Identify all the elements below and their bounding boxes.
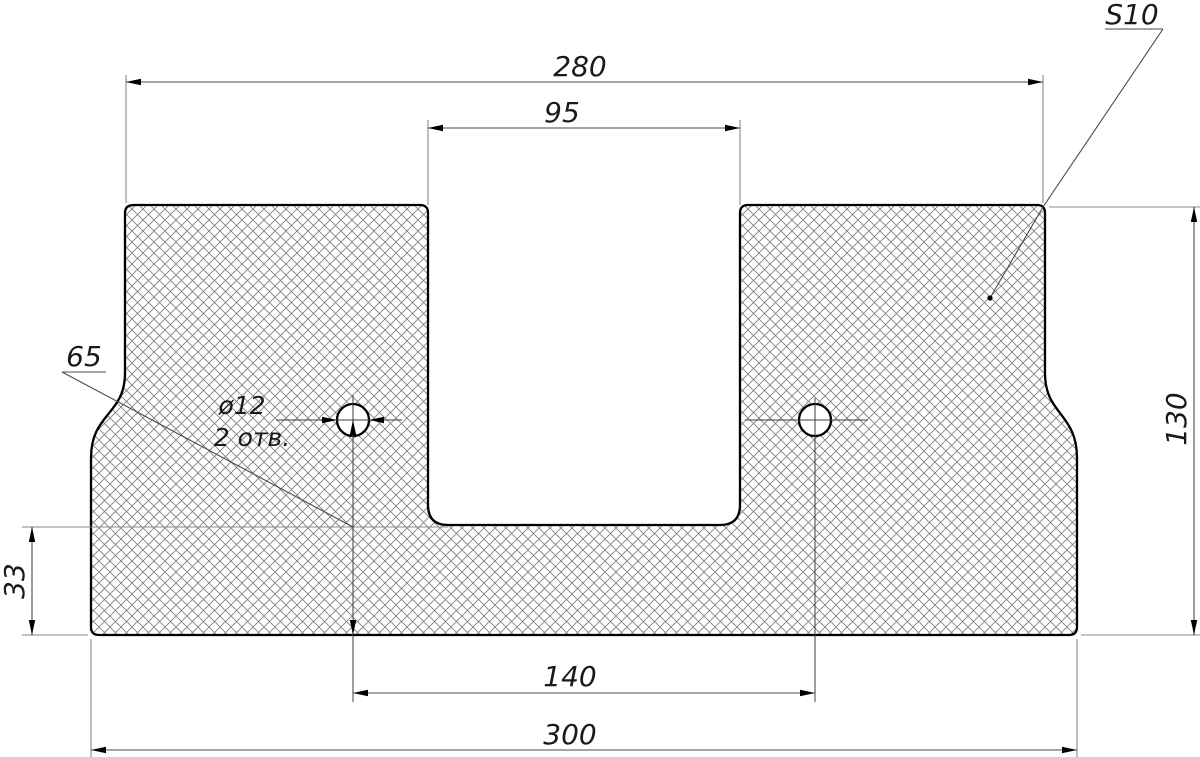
- dim-value-130: 130: [1160, 392, 1193, 445]
- hole-count-label: 2 отв.: [214, 423, 290, 452]
- arrowhead-left: [353, 690, 368, 696]
- arrowhead-right: [725, 125, 740, 131]
- dim-hole-spacing: 140: [353, 660, 815, 696]
- arrowhead-right: [800, 690, 815, 696]
- arrowhead-left: [428, 125, 443, 131]
- dim-value-33: 33: [0, 563, 31, 599]
- thickness-label: S10: [1105, 0, 1158, 31]
- dim-value-280: 280: [553, 50, 606, 83]
- arrowhead-right: [1028, 79, 1043, 85]
- arrowhead-right: [1062, 747, 1077, 753]
- hole-diameter-label: ø12: [217, 391, 265, 420]
- arrowhead-bottom: [29, 620, 35, 635]
- dim-overall-width-top: 280: [126, 50, 1043, 203]
- drawing-stage: 280 95 130 33 65: [0, 0, 1200, 757]
- callout-end-dot: [987, 295, 992, 300]
- arrowhead-top: [1191, 207, 1197, 222]
- arrowhead-top: [29, 527, 35, 542]
- dim-value-65: 65: [66, 340, 102, 373]
- arrowhead-left: [126, 79, 141, 85]
- technical-drawing-canvas: 280 95 130 33 65: [0, 0, 1200, 757]
- arrowhead-bottom: [1191, 620, 1197, 635]
- dim-value-300: 300: [543, 718, 596, 751]
- part-outline: [91, 205, 1077, 635]
- arrowhead-left: [91, 747, 106, 753]
- dim-slot-width: 95: [428, 96, 740, 205]
- dim-value-95: 95: [544, 96, 580, 129]
- part-section: [91, 205, 1077, 635]
- dim-value-140: 140: [543, 660, 596, 693]
- dim-overall-width-bottom: 300: [91, 639, 1077, 757]
